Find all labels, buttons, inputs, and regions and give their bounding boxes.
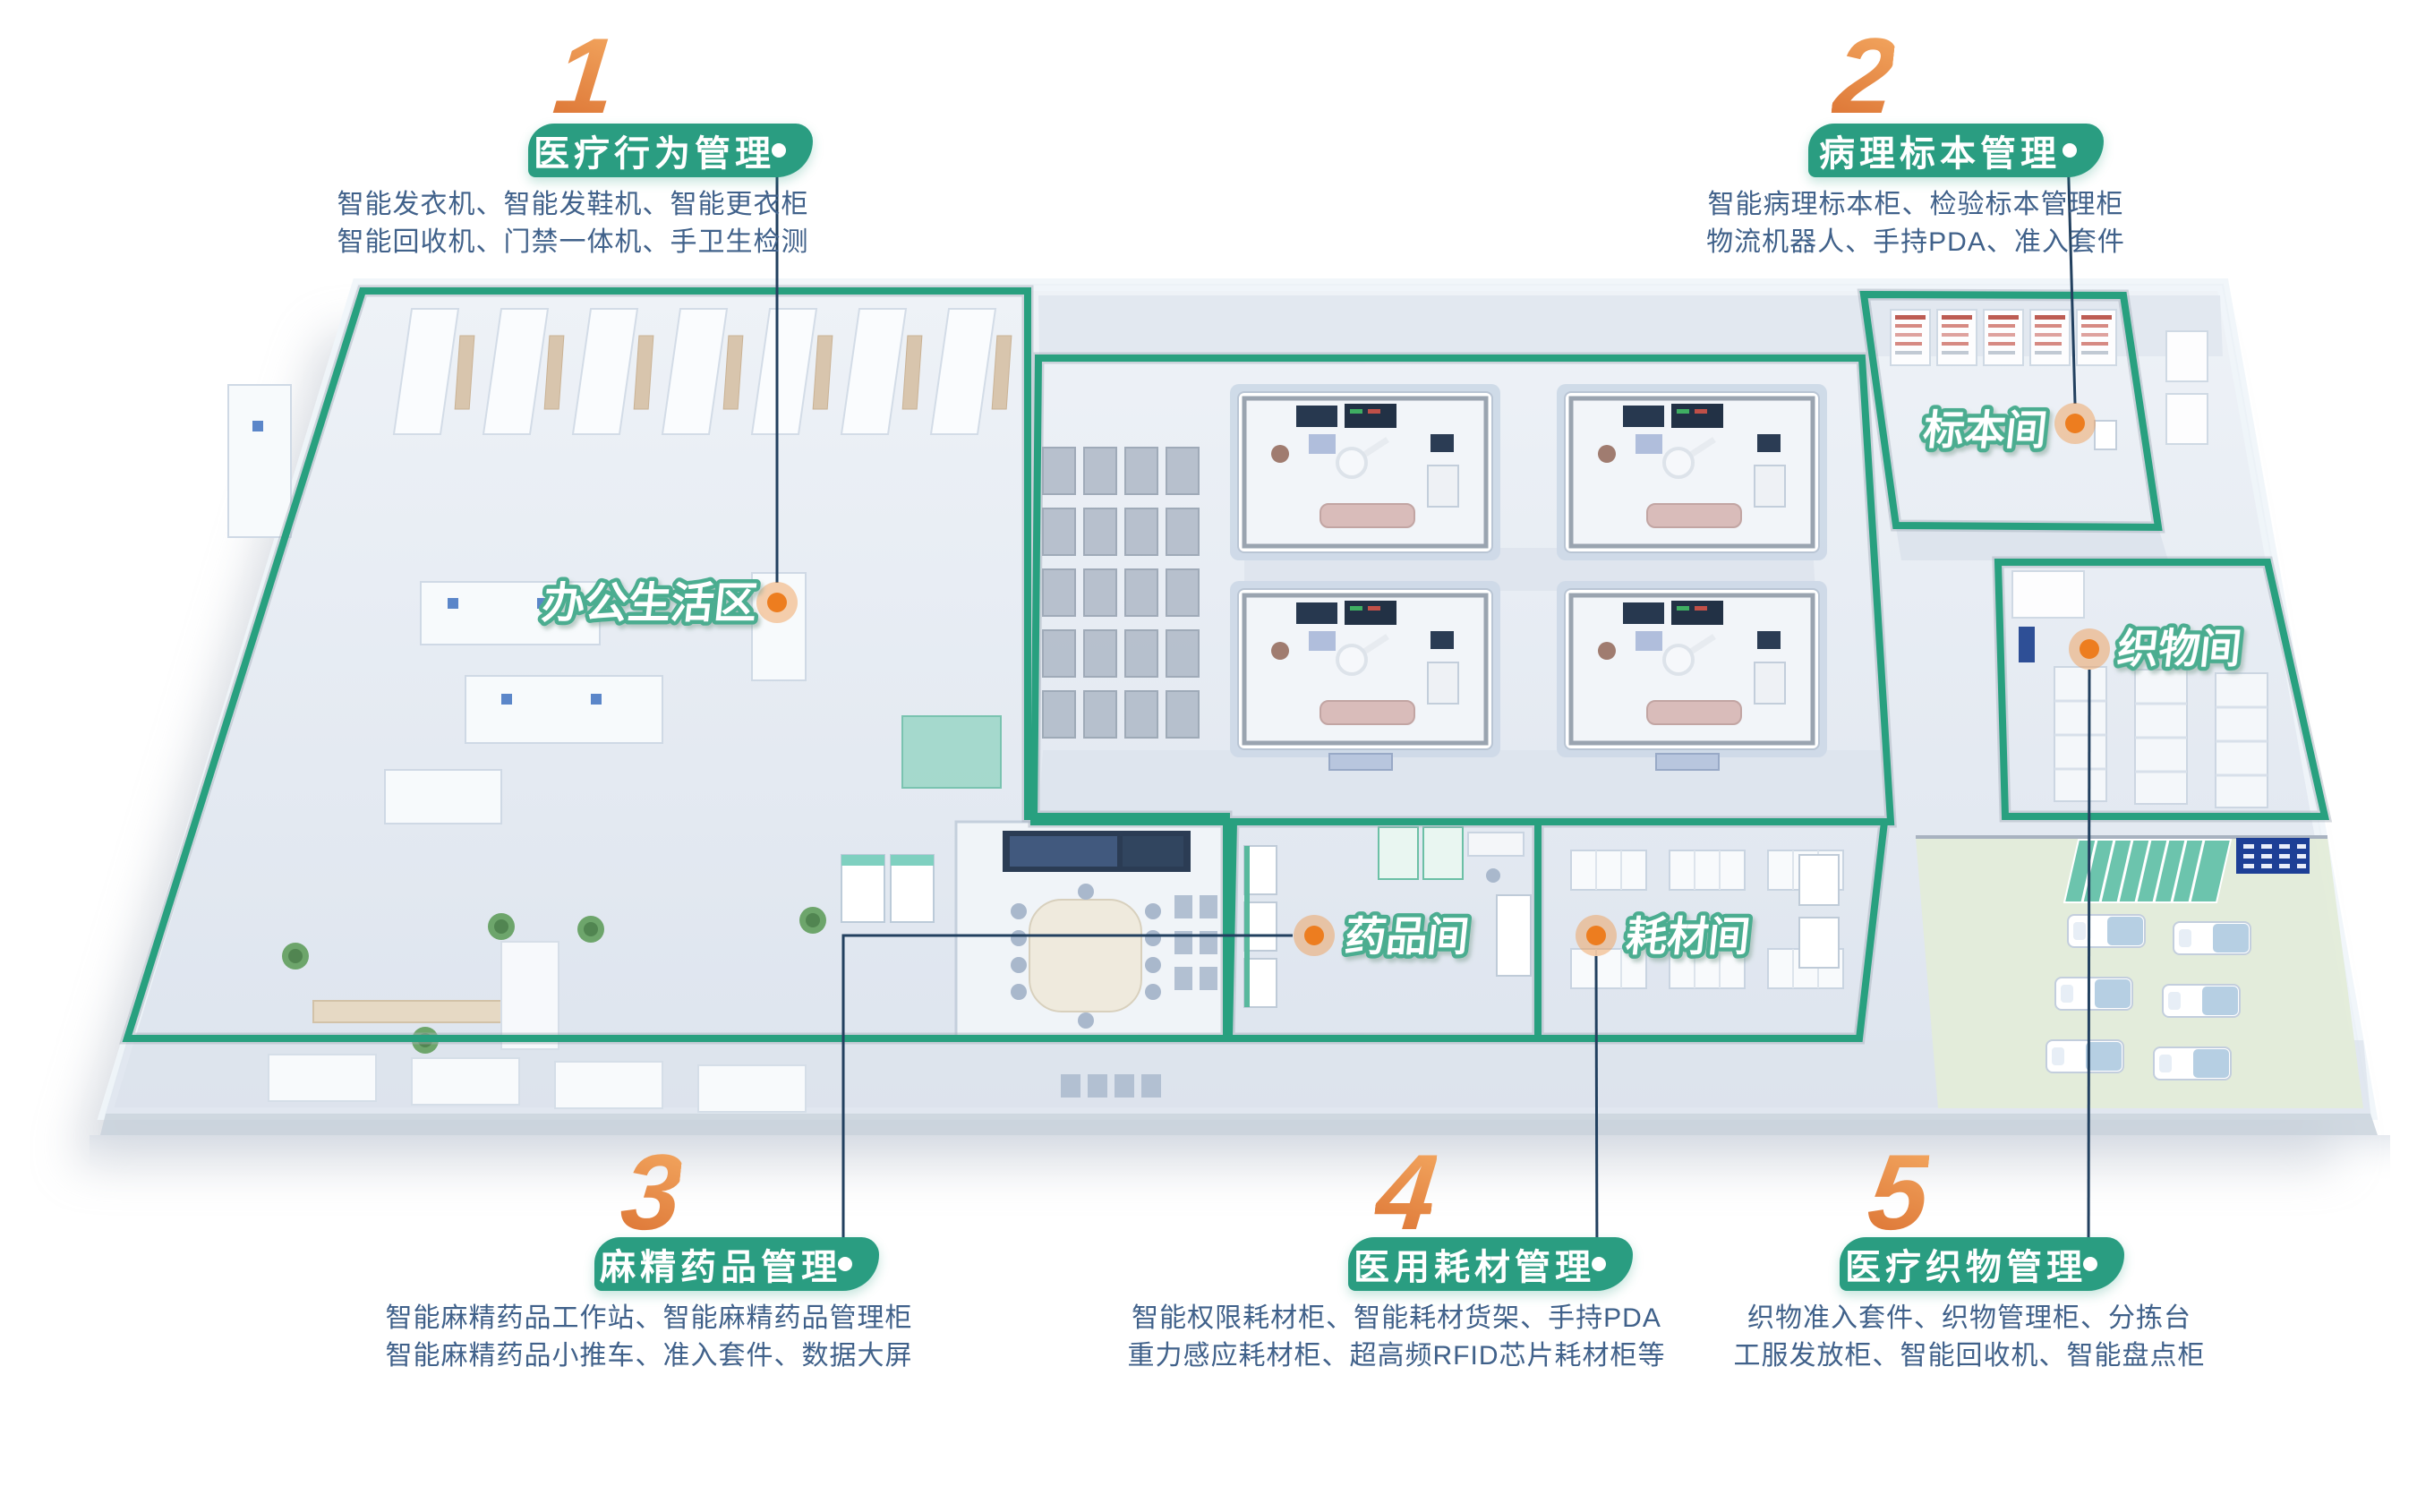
section-title-5: 医疗织物管理 [1815,1238,2149,1290]
section-title-4: 医用耗材管理 [1323,1238,1658,1290]
desc-line: 智能麻精药品工作站、智能麻精药品管理柜 [246,1300,1052,1337]
desc-line: 智能麻精药品小推车、准入套件、数据大屏 [246,1337,1052,1375]
location-dot-specimen [2054,403,2096,444]
pill-dot-icon [1592,1257,1606,1271]
section-number-4: 4 [1371,1139,1439,1246]
infographic-stage: 办公生活区 标本间 织物间 药品间 耗材间 1 医疗行为管理 智能发衣机、智能发… [0,0,2417,1512]
location-dot-consumables [1576,915,1617,956]
section-desc-5: 织物准入套件、织物管理柜、分拣台 工服发放柜、智能回收机、智能盘点柜 [1567,1300,2372,1375]
room-label-consumables: 耗材间 [1624,913,1752,960]
location-dot-office-living [756,582,798,623]
section-number-2: 2 [1830,22,1897,130]
desc-line: 智能发衣机、智能发鞋机、智能更衣柜 [170,186,976,224]
section-pill-4: 医用耗材管理 [1348,1237,1633,1291]
section-number-1: 1 [550,22,617,130]
location-dot-drug [1294,915,1335,956]
section-title-1: 医疗行为管理 [503,124,838,176]
desc-line: 智能回收机、门禁一体机、手卫生检测 [170,224,976,261]
desc-line: 织物准入套件、织物管理柜、分拣台 [1567,1300,2372,1337]
section-pill-5: 医疗织物管理 [1840,1237,2124,1291]
room-label-textile: 织物间 [2115,625,2243,671]
pill-dot-icon [2083,1257,2097,1271]
leader-line-5 [2088,670,2089,1264]
location-dot-textile [2069,628,2110,670]
section-desc-1: 智能发衣机、智能发鞋机、智能更衣柜 智能回收机、门禁一体机、手卫生检测 [170,186,976,261]
pill-dot-icon [772,143,786,158]
section-number-5: 5 [1864,1139,1931,1246]
section-title-3: 麻精药品管理 [569,1238,904,1290]
desc-line: 工服发放柜、智能回收机、智能盘点柜 [1567,1337,2372,1375]
section-desc-2: 智能病理标本柜、检验标本管理柜 物流机器人、手持PDA、准入套件 [1513,186,2319,261]
pill-dot-icon [2063,143,2077,158]
section-pill-3: 麻精药品管理 [594,1237,879,1291]
section-pill-2: 病理标本管理 [1808,124,2104,177]
room-label-specimen: 标本间 [1921,406,2049,453]
section-desc-3: 智能麻精药品工作站、智能麻精药品管理柜 智能麻精药品小推车、准入套件、数据大屏 [246,1300,1052,1375]
room-label-office-living: 办公生活区 [540,579,760,628]
section-pill-1: 医疗行为管理 [528,124,813,177]
ward-furniture [1916,837,2363,1108]
section-number-3: 3 [617,1139,684,1246]
leader-line-4 [1596,956,1597,1264]
room-label-drug: 药品间 [1343,913,1471,960]
pill-dot-icon [838,1257,852,1271]
desc-line: 物流机器人、手持PDA、准入套件 [1513,224,2319,261]
desc-line: 智能病理标本柜、检验标本管理柜 [1513,186,2319,224]
